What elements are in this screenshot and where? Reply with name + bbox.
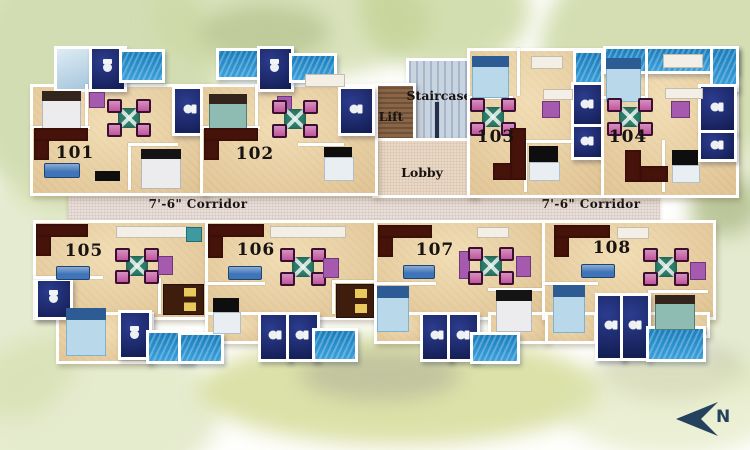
balcony: [470, 332, 520, 364]
north-label: N: [716, 407, 730, 427]
tv: [95, 171, 120, 181]
balcony: [119, 49, 165, 83]
wardrobe: [158, 256, 173, 275]
unit-102-label: 102: [229, 144, 281, 163]
bed: [472, 56, 509, 98]
unit-103-label: 103: [472, 128, 520, 146]
bed: [141, 149, 181, 189]
dining-chair: [136, 123, 151, 137]
bed: [336, 284, 374, 318]
dining-chair: [468, 271, 483, 285]
dining-chair: [272, 100, 287, 114]
wall: [255, 84, 258, 130]
unit-101-label: 101: [49, 143, 101, 162]
bathroom: [698, 130, 737, 162]
unit-104-label: 104: [602, 128, 654, 146]
corridor-label-left: 7'-6" Corridor: [128, 196, 268, 211]
counter: [270, 226, 346, 238]
toilet: [295, 331, 309, 340]
balcony: [646, 326, 706, 362]
bed: [496, 290, 532, 332]
dining-chair: [501, 98, 516, 112]
dining-chair: [674, 248, 689, 262]
wall: [85, 84, 88, 130]
balcony: [178, 332, 224, 364]
kitchen-counter: [493, 163, 512, 180]
bed: [655, 295, 695, 330]
sofa: [228, 266, 262, 280]
kitchen-counter: [378, 225, 432, 238]
tv-stand: [672, 165, 700, 183]
dining-set: [643, 248, 689, 286]
wall: [128, 143, 131, 190]
sofa: [403, 265, 435, 279]
balcony: [312, 328, 358, 362]
tv: [529, 146, 558, 162]
toilet: [268, 331, 282, 340]
dining-chair: [499, 271, 514, 285]
tv-stand: [213, 312, 241, 334]
bathroom: [698, 84, 737, 134]
toilet: [130, 326, 139, 340]
dining-chair: [674, 272, 689, 286]
dining-set: [115, 248, 159, 284]
bed: [553, 285, 585, 333]
tv: [213, 298, 239, 312]
bathroom: [338, 86, 375, 136]
tv-stand: [529, 162, 560, 181]
unit-105-label: 105: [58, 241, 110, 260]
counter: [663, 54, 703, 68]
wall: [524, 140, 574, 143]
wall: [645, 48, 648, 98]
wardrobe: [89, 92, 105, 108]
dining-chair: [280, 248, 295, 262]
wall: [374, 282, 436, 285]
dining-chair: [107, 99, 122, 113]
toilet: [430, 331, 444, 340]
wall: [517, 48, 520, 96]
wall: [128, 143, 178, 146]
counter: [116, 226, 190, 238]
dining-set: [468, 247, 514, 285]
kitchen-counter: [36, 224, 88, 237]
stair-wall: [435, 102, 439, 138]
dining-chair: [107, 123, 122, 137]
dining-chair: [272, 124, 287, 138]
bed: [42, 91, 81, 131]
dining-chair: [280, 272, 295, 286]
counter: [477, 227, 509, 238]
toilet: [103, 59, 112, 73]
toilet: [628, 321, 642, 330]
dining-chair: [468, 247, 483, 261]
bed: [66, 308, 106, 356]
counter: [665, 88, 703, 99]
unit-108-label: 108: [586, 238, 638, 257]
counter: [543, 89, 573, 100]
dining-chair: [144, 270, 159, 284]
dining-chair: [303, 100, 318, 114]
kitchen-counter: [34, 128, 88, 141]
dining-chair: [144, 248, 159, 262]
dining-chair: [638, 98, 653, 112]
bed: [606, 58, 641, 102]
toilet: [710, 141, 724, 150]
wall: [648, 290, 708, 293]
dining-chair: [115, 270, 130, 284]
tv-stand: [324, 157, 354, 181]
kitchen-counter: [554, 225, 610, 238]
wall: [298, 143, 344, 146]
toilet: [49, 290, 58, 304]
toilet: [710, 103, 724, 112]
dining-chair: [499, 247, 514, 261]
dining-chair: [643, 272, 658, 286]
staircase-label: Staircase: [406, 88, 472, 102]
bathroom: [571, 124, 605, 160]
sofa: [581, 264, 615, 278]
floor-plan: 7'-6" Corridor 7'-6" Corridor Staircase …: [0, 0, 750, 450]
toilet: [349, 105, 363, 114]
counter: [531, 56, 563, 69]
sofa: [44, 163, 80, 178]
dining-chair: [115, 248, 130, 262]
counter: [305, 74, 345, 87]
toilet: [580, 100, 594, 109]
dining-set: [272, 100, 318, 138]
bathroom: [571, 82, 605, 130]
toilet: [270, 59, 279, 73]
wall: [332, 280, 335, 314]
tv: [672, 150, 698, 165]
unit-106-label: 106: [230, 240, 282, 259]
kitchen-counter: [625, 150, 641, 182]
bed: [209, 94, 247, 132]
corridor-label-right: 7'-6" Corridor: [520, 196, 662, 211]
dining-chair: [607, 98, 622, 112]
toilet: [456, 331, 470, 340]
bed: [163, 284, 204, 315]
wardrobe: [542, 101, 560, 118]
wardrobe: [516, 256, 531, 277]
wardrobe: [323, 258, 339, 278]
kitchen-counter: [640, 166, 668, 182]
tv: [324, 147, 352, 157]
dining-set: [280, 248, 326, 286]
bed: [377, 286, 409, 332]
dining-set: [107, 99, 151, 137]
dining-chair: [303, 124, 318, 138]
dining-chair: [136, 99, 151, 113]
lobby-label: Lobby: [380, 164, 464, 180]
wall: [332, 280, 374, 283]
dining-chair: [643, 248, 658, 262]
toilet: [183, 105, 197, 114]
dining-chair: [470, 98, 485, 112]
toilet: [580, 137, 594, 146]
unit-107-label: 107: [409, 240, 461, 259]
toilet: [604, 321, 618, 330]
sofa: [56, 266, 90, 280]
wall: [205, 282, 265, 285]
kitchen-counter: [204, 128, 258, 141]
wardrobe: [671, 101, 690, 118]
basin: [186, 227, 202, 242]
wardrobe: [690, 262, 706, 280]
foliage-blob: [560, 355, 750, 450]
north-arrow-icon: [674, 401, 718, 437]
kitchen-counter: [208, 224, 264, 237]
